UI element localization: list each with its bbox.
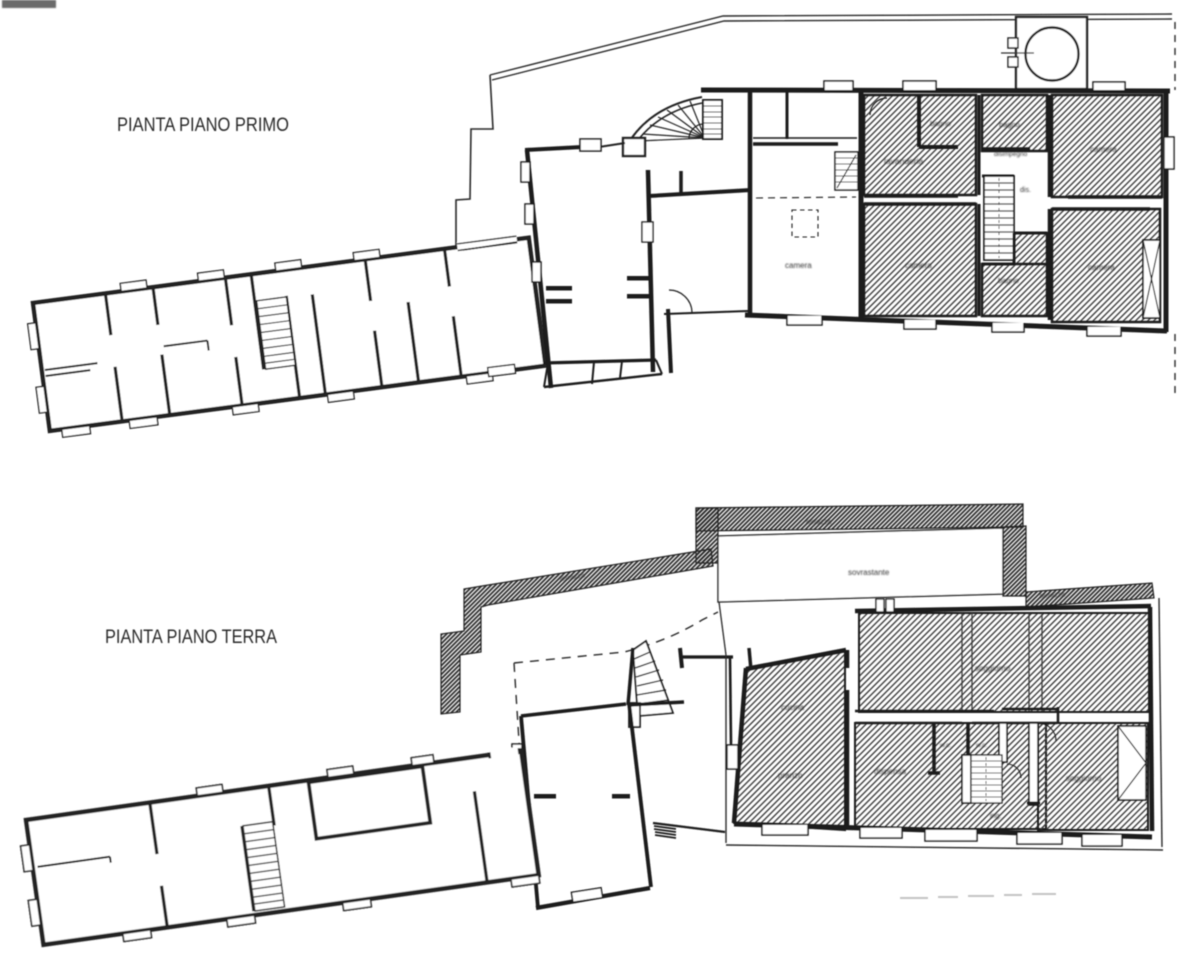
svg-text:pranzo: pranzo <box>778 771 803 780</box>
svg-text:camera: camera <box>785 261 812 270</box>
svg-text:camera: camera <box>905 261 932 270</box>
svg-text:PIANTA PIANO TERRA: PIANTA PIANO TERRA <box>105 627 277 648</box>
svg-text:lavanderia: lavanderia <box>884 156 923 166</box>
svg-text:w.c.: w.c. <box>939 742 951 749</box>
svg-text:camera: camera <box>1088 263 1115 272</box>
svg-text:PIANTA PIANO PRIMO: PIANTA PIANO PRIMO <box>117 115 289 136</box>
svg-text:camera: camera <box>1090 145 1117 154</box>
svg-text:bagno: bagno <box>998 276 1019 285</box>
svg-text:bagno: bagno <box>999 120 1020 129</box>
svg-text:sovrastante: sovrastante <box>848 568 890 577</box>
svg-text:terrazza: terrazza <box>806 519 831 526</box>
svg-text:soggiorno: soggiorno <box>1066 774 1102 783</box>
svg-text:bagno: bagno <box>930 119 951 128</box>
svg-text:disimpegno: disimpegno <box>994 151 1028 158</box>
svg-text:dispensa: dispensa <box>874 767 907 776</box>
svg-text:cucina: cucina <box>781 703 805 712</box>
svg-text:ing.: ing. <box>990 813 1001 820</box>
svg-text:soggiorno: soggiorno <box>975 664 1011 673</box>
svg-text:w.c.: w.c. <box>975 742 987 749</box>
svg-text:dis.: dis. <box>1020 187 1031 194</box>
